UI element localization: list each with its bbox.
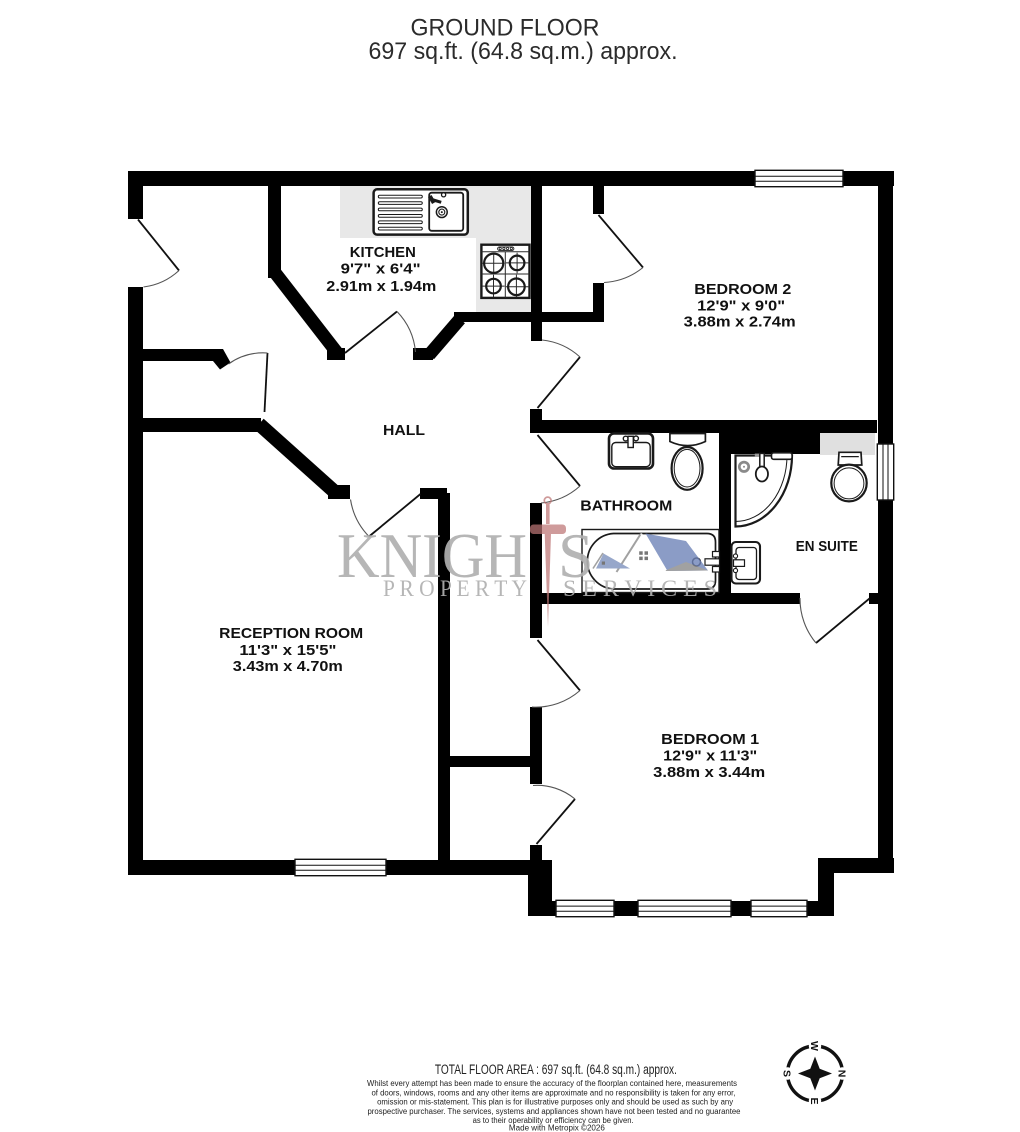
svg-text:TOTAL FLOOR AREA : 697 sq.ft.: TOTAL FLOOR AREA : 697 sq.ft. (64.8 sq.m… — [435, 1062, 677, 1077]
svg-text:3.88m x 2.74m: 3.88m x 2.74m — [684, 314, 796, 331]
svg-text:9'7" x 6'4": 9'7" x 6'4" — [341, 261, 421, 278]
svg-text:Whilst every attempt has been: Whilst every attempt has been made to en… — [367, 1079, 737, 1088]
svg-text:S E R V I C E S: S E R V I C E S — [563, 576, 717, 601]
svg-text:12'9" x 11'3": 12'9" x 11'3" — [663, 748, 757, 765]
svg-text:KITCHEN: KITCHEN — [350, 244, 416, 261]
svg-text:12'9" x 9'0": 12'9" x 9'0" — [697, 298, 785, 315]
svg-text:697 sq.ft. (64.8 sq.m.) approx: 697 sq.ft. (64.8 sq.m.) approx. — [369, 38, 678, 65]
svg-text:BEDROOM 2: BEDROOM 2 — [694, 281, 791, 298]
svg-text:Made with Metropix ©2026: Made with Metropix ©2026 — [509, 1124, 606, 1132]
svg-text:BATHROOM: BATHROOM — [580, 498, 672, 515]
svg-text:omission or mis-statement. Thi: omission or mis-statement. This plan is … — [377, 1098, 733, 1107]
svg-text:EN SUITE: EN SUITE — [796, 538, 858, 555]
svg-text:3.43m x 4.70m: 3.43m x 4.70m — [233, 658, 343, 675]
svg-text:RECEPTION ROOM: RECEPTION ROOM — [219, 625, 363, 642]
svg-text:prospective purchaser. The ser: prospective purchaser. The services, sys… — [368, 1107, 742, 1116]
svg-text:N: N — [836, 1070, 848, 1078]
svg-text:W: W — [808, 1041, 820, 1051]
svg-text:P R O P E R T Y: P R O P E R T Y — [383, 576, 527, 601]
svg-text:3.88m x 3.44m: 3.88m x 3.44m — [653, 764, 765, 781]
svg-text:of doors, windows, rooms and a: of doors, windows, rooms and any other i… — [372, 1088, 736, 1097]
svg-text:11'3" x 15'5": 11'3" x 15'5" — [239, 642, 336, 659]
svg-text:2.91m x 1.94m: 2.91m x 1.94m — [326, 278, 436, 295]
svg-text:S: S — [781, 1070, 793, 1077]
svg-text:BEDROOM 1: BEDROOM 1 — [661, 731, 759, 748]
svg-text:E: E — [808, 1097, 820, 1104]
svg-text:HALL: HALL — [383, 422, 425, 439]
